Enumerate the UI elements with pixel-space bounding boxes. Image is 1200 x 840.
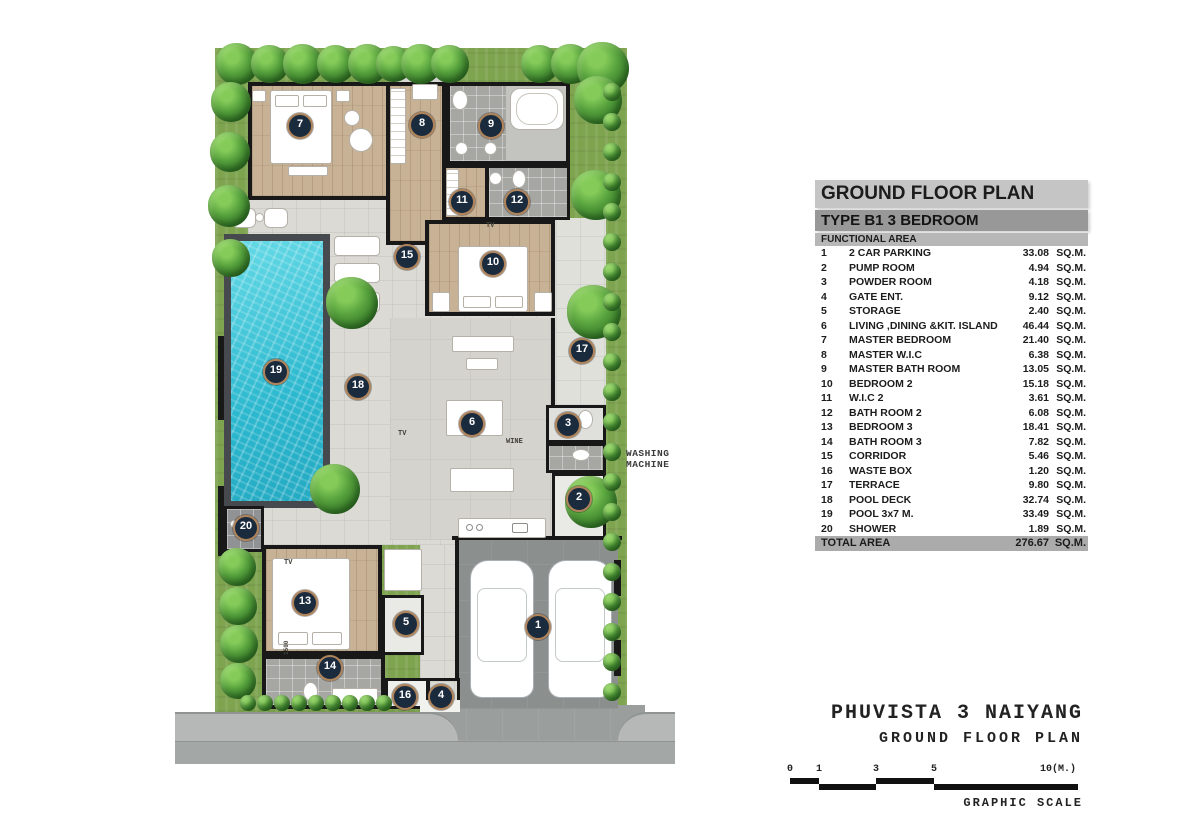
- wall-pool-left-a: [218, 336, 224, 420]
- room-marker-7: 7: [287, 113, 313, 139]
- legend-column-header: FUNCTIONAL AREA: [815, 233, 1088, 246]
- floor-plan: WINE TV TV TV 1500 WASHING MACHINE 12345…: [0, 0, 760, 840]
- area-table-row: 10BEDROOM 215.18SQ.M.: [815, 377, 1088, 392]
- area-table-row: 5STORAGE2.40SQ.M.: [815, 304, 1088, 319]
- dim-1500-label: 1500: [283, 641, 290, 655]
- bush-icon: [603, 533, 621, 551]
- room-marker-8: 8: [409, 112, 435, 138]
- wine-label: WINE: [506, 438, 523, 446]
- room-marker-17: 17: [569, 338, 595, 364]
- tree-icon: [220, 625, 258, 663]
- bed2-nightstand-left: [432, 292, 450, 312]
- wc-basin: [572, 449, 590, 461]
- room-marker-1: 1: [525, 614, 551, 640]
- bush-icon: [603, 113, 621, 131]
- bush-icon: [603, 383, 621, 401]
- master-ottoman: [344, 110, 360, 126]
- area-table-row: 18POOL DECK32.74SQ.M.: [815, 493, 1088, 508]
- tree-icon: [220, 663, 256, 699]
- wall-pool-left-b: [218, 486, 224, 556]
- area-table-row: 12 CAR PARKING33.08SQ.M.: [815, 246, 1088, 261]
- master-bed-bench: [288, 166, 328, 176]
- bush-icon: [603, 623, 621, 641]
- area-table-row: 3POWDER ROOM4.18SQ.M.: [815, 275, 1088, 290]
- tree-icon: [211, 82, 251, 122]
- tree-icon: [210, 132, 250, 172]
- bush-icon: [603, 323, 621, 341]
- area-table-row: 7MASTER BEDROOM21.40SQ.M.: [815, 333, 1088, 348]
- master-basin-2: [484, 142, 497, 155]
- bed2-nightstand-right: [534, 292, 552, 312]
- bush-icon: [603, 83, 621, 101]
- scale-label-3: 3: [873, 764, 879, 775]
- scale-bar-seg-2: [819, 784, 876, 790]
- driveway: [430, 705, 645, 741]
- bath2-basin: [489, 172, 502, 185]
- bush-icon: [359, 695, 375, 711]
- wall-living-right: [551, 318, 555, 406]
- bush-icon: [603, 593, 621, 611]
- bush-icon: [603, 173, 621, 191]
- graphic-scale-caption: GRAPHIC SCALE: [963, 796, 1083, 810]
- bush-icon: [603, 233, 621, 251]
- total-unit: SQ.M.: [1049, 536, 1088, 551]
- kitchen-island: [450, 468, 514, 492]
- room-marker-10: 10: [480, 251, 506, 277]
- sidewalk-left: [175, 712, 458, 741]
- tree-icon: [310, 464, 360, 514]
- legend-subtitle: TYPE B1 3 BEDROOM: [815, 210, 1088, 231]
- bush-icon: [342, 695, 358, 711]
- tree-icon: [212, 239, 250, 277]
- room-marker-6: 6: [459, 411, 485, 437]
- kitchen-sink: [512, 523, 528, 533]
- bush-icon: [603, 263, 621, 281]
- area-table-row: 17TERRACE9.80SQ.M.: [815, 478, 1088, 493]
- bush-icon: [291, 695, 307, 711]
- tree-icon: [219, 587, 257, 625]
- floor-plan-sheet: WINE TV TV TV 1500 WASHING MACHINE 12345…: [0, 0, 1200, 840]
- stove-burner-2: [476, 524, 483, 531]
- coffee-table: [466, 358, 498, 370]
- bush-icon: [603, 653, 621, 671]
- scale-label-1: 1: [816, 764, 822, 775]
- bush-icon: [603, 683, 621, 701]
- master-nightstand-left: [252, 90, 266, 102]
- room-marker-2: 2: [566, 486, 592, 512]
- master-toilet: [452, 90, 468, 110]
- bed2-pillow-left: [463, 296, 491, 308]
- area-total-row: TOTAL AREA 276.67 SQ.M.: [815, 536, 1088, 551]
- area-table-row: 20SHOWER1.89SQ.M.: [815, 522, 1088, 537]
- legend-title: GROUND FLOOR PLAN: [815, 180, 1088, 208]
- room-marker-18: 18: [345, 374, 371, 400]
- bush-icon: [240, 695, 256, 711]
- washing-machine-note: WASHING MACHINE: [626, 448, 669, 470]
- area-legend: GROUND FLOOR PLAN TYPE B1 3 BEDROOM FUNC…: [815, 180, 1088, 551]
- room-marker-5: 5: [393, 611, 419, 637]
- bush-icon: [603, 203, 621, 221]
- sun-lounger: [334, 236, 380, 256]
- master-nightstand-right: [336, 90, 350, 102]
- total-value: 276.67: [1005, 536, 1049, 551]
- room-marker-16: 16: [392, 684, 418, 710]
- area-table-row: 15CORRIDOR5.46SQ.M.: [815, 449, 1088, 464]
- outdoor-sink-icon: [255, 213, 264, 222]
- room-marker-19: 19: [263, 359, 289, 385]
- area-table-row: 2PUMP ROOM4.94SQ.M.: [815, 261, 1088, 276]
- area-table-row: 9MASTER BATH ROOM13.05SQ.M.: [815, 362, 1088, 377]
- car-2-windshield: [555, 588, 605, 662]
- area-table-row: 13BEDROOM 318.41SQ.M.: [815, 420, 1088, 435]
- stove-burner-1: [466, 524, 473, 531]
- wardrobe-cabinet: [412, 84, 438, 100]
- master-armchair: [349, 128, 373, 152]
- area-table-row: 12BATH ROOM 26.08SQ.M.: [815, 406, 1088, 421]
- bush-icon: [603, 503, 621, 521]
- room-marker-4: 4: [428, 684, 454, 710]
- scale-label-5: 5: [931, 764, 937, 775]
- bush-icon: [603, 143, 621, 161]
- area-table-row: 14BATH ROOM 37.82SQ.M.: [815, 435, 1088, 450]
- bath2-toilet: [512, 170, 526, 188]
- bush-icon: [603, 443, 621, 461]
- wall-garage-left: [455, 536, 459, 678]
- outdoor-basin-right: [264, 208, 288, 228]
- tree-icon: [208, 185, 250, 227]
- road: [175, 741, 675, 764]
- room-marker-14: 14: [317, 655, 343, 681]
- master-bed-pillow-right: [303, 95, 327, 107]
- bush-icon: [603, 353, 621, 371]
- car-1-windshield: [477, 588, 527, 662]
- bush-icon: [274, 695, 290, 711]
- room-marker-9: 9: [478, 113, 504, 139]
- tree-icon: [326, 277, 378, 329]
- room-marker-13: 13: [292, 590, 318, 616]
- room-marker-3: 3: [555, 412, 581, 438]
- bathtub-inner: [516, 93, 558, 125]
- room-marker-11: 11: [449, 189, 475, 215]
- bush-icon: [376, 695, 392, 711]
- room-marker-12: 12: [504, 189, 530, 215]
- tv-label-bedroom3: TV: [284, 559, 292, 567]
- scale-label-10: 10(M.): [1040, 764, 1076, 775]
- area-table-row: 4GATE ENT.9.12SQ.M.: [815, 290, 1088, 305]
- bush-icon: [257, 695, 273, 711]
- area-table-row: 11W.I.C 23.61SQ.M.: [815, 391, 1088, 406]
- area-table-row: 6LIVING ,DINING &KIT. ISLAND46.44SQ.M.: [815, 319, 1088, 334]
- wardrobe-shelves: [390, 88, 406, 164]
- bush-icon: [603, 473, 621, 491]
- tree-icon: [218, 548, 256, 586]
- bush-icon: [308, 695, 324, 711]
- total-label: TOTAL AREA: [815, 536, 1005, 551]
- bed3-pillow-right: [312, 632, 342, 645]
- tv-label-bedroom2: TV: [486, 222, 494, 230]
- scale-label-0: 0: [787, 764, 793, 775]
- area-table-row: 19POOL 3x7 M.33.49SQ.M.: [815, 507, 1088, 522]
- area-table-row: 8MASTER W.I.C6.38SQ.M.: [815, 348, 1088, 363]
- scale-bar-seg-3: [876, 778, 934, 784]
- project-title: PHUVISTA 3 NAIYANG: [831, 702, 1083, 725]
- drawing-title: GROUND FLOOR PLAN: [879, 730, 1083, 747]
- master-bed-pillow-left: [275, 95, 299, 107]
- bush-icon: [603, 563, 621, 581]
- bush-icon: [603, 293, 621, 311]
- room-marker-15: 15: [394, 244, 420, 270]
- bush-icon: [603, 413, 621, 431]
- area-table-rows: 12 CAR PARKING33.08SQ.M.2PUMP ROOM4.94SQ…: [815, 246, 1088, 536]
- bush-icon: [325, 695, 341, 711]
- scale-bar-seg-4: [934, 784, 1078, 790]
- closet-bedroom3: [384, 549, 422, 591]
- sofa: [452, 336, 514, 352]
- master-basin-1: [455, 142, 468, 155]
- tv-label-living: TV: [398, 430, 406, 438]
- area-table-row: 16WASTE BOX1.20SQ.M.: [815, 464, 1088, 479]
- tree-icon: [431, 45, 469, 83]
- room-marker-20: 20: [233, 515, 259, 541]
- bed2-pillow-right: [495, 296, 523, 308]
- scale-bar-seg-1: [790, 778, 819, 784]
